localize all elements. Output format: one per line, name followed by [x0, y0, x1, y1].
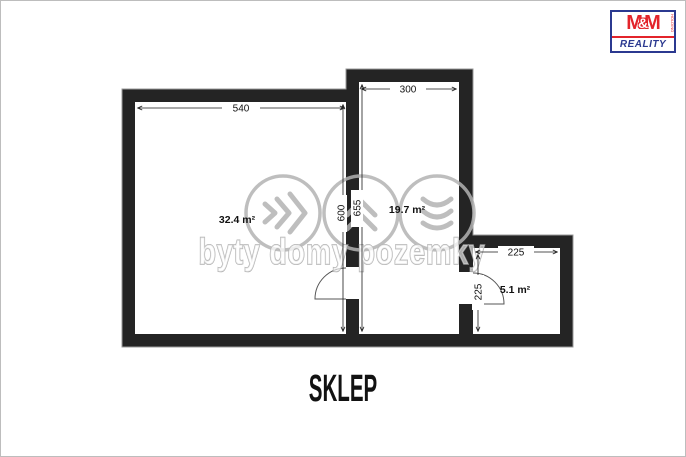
- logo-ampersand: &: [638, 15, 648, 31]
- dim-label-300: 300: [400, 85, 417, 96]
- logo-mm-row: M&M HOLDING: [612, 12, 674, 38]
- wall-left: [122, 89, 135, 347]
- dim-label-600: 600: [337, 204, 348, 221]
- page-title: SKLEP: [158, 369, 527, 409]
- wall-bottom: [122, 334, 573, 347]
- floorplan-page: byty domy pozemky 540 300 225 225 600 65…: [0, 0, 686, 457]
- chevrons-right-icon: [265, 194, 305, 232]
- dim-label-225-v: 225: [474, 283, 485, 300]
- wall-right-small-room: [560, 235, 573, 347]
- logo-reality-text: REALITY: [612, 38, 674, 51]
- area-label-middle-room: 19.7 m²: [389, 204, 426, 216]
- area-label-large-room: 32.4 m²: [219, 214, 256, 226]
- mm-reality-logo: M&M HOLDING REALITY: [610, 10, 676, 53]
- logo-holding-text: HOLDING: [670, 14, 674, 32]
- dim-label-540: 540: [233, 104, 250, 115]
- wall-top-middle-room: [346, 69, 473, 82]
- area-label-small-room: 5.1 m²: [500, 284, 531, 296]
- wall-right-middle-room: [459, 69, 473, 347]
- watermark-text: byty domy pozemky: [199, 231, 486, 272]
- door-opening-small-room: [459, 272, 473, 304]
- dim-label-225-h: 225: [508, 248, 525, 259]
- wall-top-large-room: [122, 89, 359, 102]
- door-openings: [346, 267, 473, 304]
- dim-label-655: 655: [353, 199, 364, 216]
- chevrons-down-icon: [423, 199, 451, 228]
- walls: [122, 69, 573, 347]
- door-swing-middle-wall: [315, 268, 346, 299]
